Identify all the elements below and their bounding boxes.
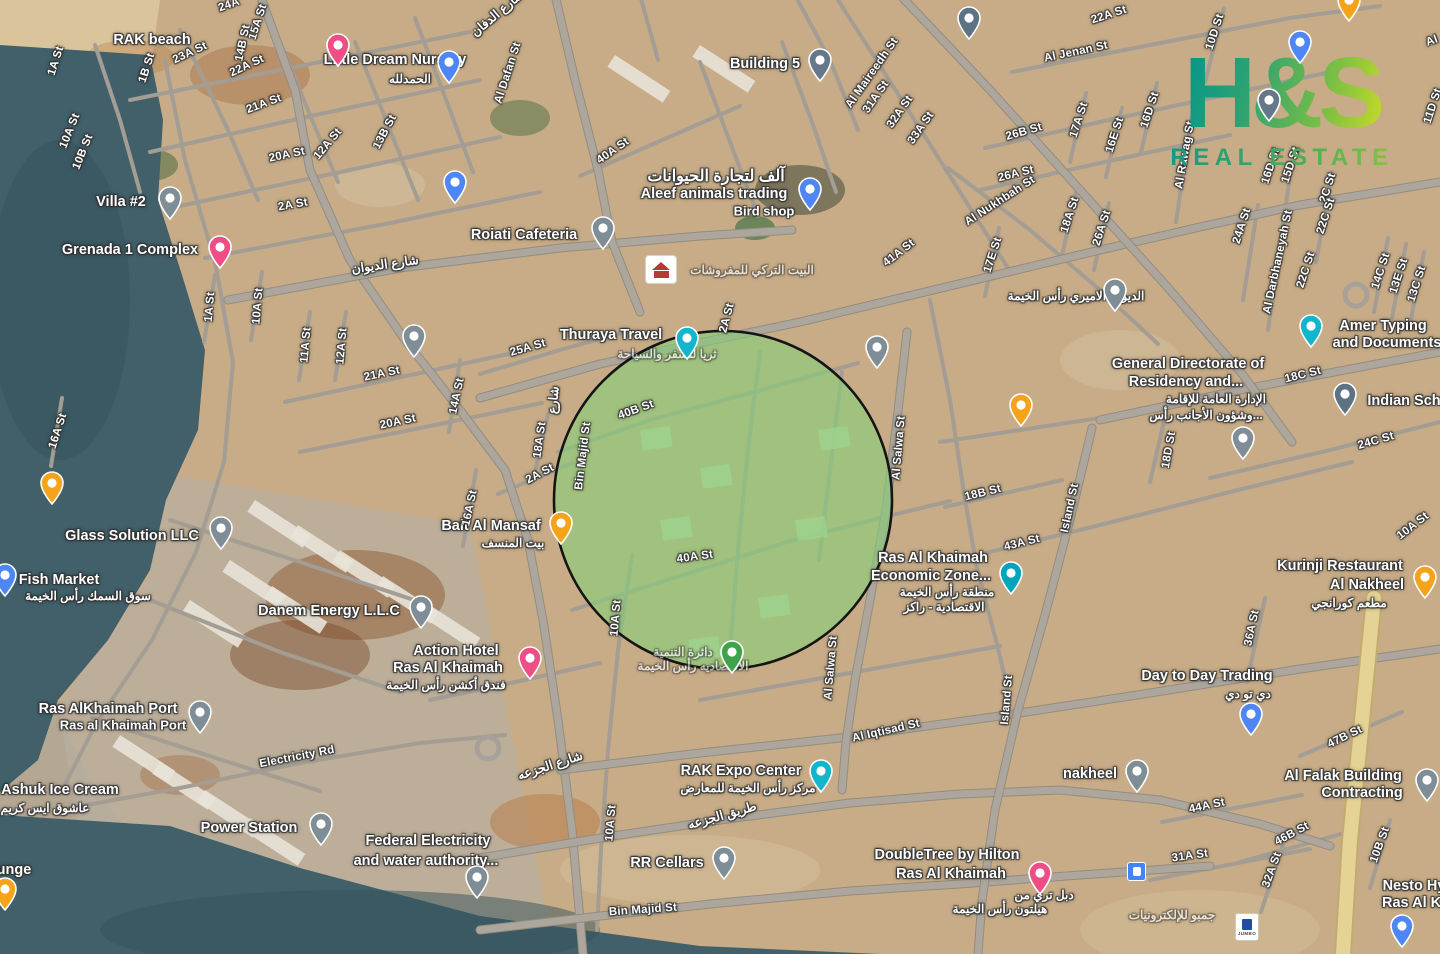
supermarket-pin[interactable] — [443, 170, 467, 204]
poi-logo-area-pin[interactable] — [1257, 88, 1281, 122]
shop-logo-area-pin[interactable] — [1288, 30, 1312, 64]
aleef-animals-trading-pin[interactable] — [798, 177, 822, 211]
kurinji-restaurant-pin[interactable] — [1413, 565, 1437, 599]
map-canvas[interactable]: RAK beachLittle Dream NurseryالحمدللهVil… — [0, 0, 1440, 954]
jumbo-electronics-icon[interactable]: JUMBO — [1235, 913, 1259, 941]
indian-school-pin[interactable] — [1333, 382, 1357, 416]
school-top-edge-pin[interactable] — [957, 6, 981, 40]
glass-solution-pin[interactable] — [209, 516, 233, 550]
poi-east-of-circle-pin[interactable] — [865, 335, 889, 369]
rak-beach-pin[interactable] — [326, 33, 350, 67]
action-hotel-pin[interactable] — [518, 646, 542, 680]
lounge-pin[interactable] — [0, 877, 17, 911]
rak-economic-zone-pin[interactable] — [999, 561, 1023, 595]
turkish-house-furniture-icon[interactable] — [645, 255, 677, 284]
economic-development-dept-pin[interactable] — [720, 640, 744, 674]
amer-typing-pin[interactable] — [1299, 314, 1323, 348]
amiri-diwan-pin[interactable] — [1103, 278, 1127, 312]
restaurant-creek-pin[interactable] — [40, 471, 64, 505]
little-dream-nursery-pin[interactable] — [437, 50, 461, 84]
bus-station-icon[interactable] — [1127, 862, 1146, 881]
al-falak-contracting-pin[interactable] — [1415, 768, 1439, 802]
federal-electricity-pin[interactable] — [465, 865, 489, 899]
danem-energy-pin[interactable] — [409, 595, 433, 629]
roiati-cafeteria-pin[interactable] — [591, 216, 615, 250]
bait-al-mansaf-pin[interactable] — [549, 511, 573, 545]
general-directorate-pin[interactable] — [1231, 426, 1255, 460]
building-5-pin[interactable] — [808, 48, 832, 82]
villa-2-pin[interactable] — [158, 186, 182, 220]
hs-real-estate-logo: H&S REAL ESTATE — [1158, 44, 1406, 172]
logo-wordmark: REAL ESTATE — [1158, 144, 1406, 172]
mosque-pin[interactable] — [402, 324, 426, 358]
rak-port-pin[interactable] — [188, 700, 212, 734]
rak-expo-center-pin[interactable] — [809, 759, 833, 793]
doubletree-hilton-pin[interactable] — [1028, 861, 1052, 895]
restaurant-top-edge-pin[interactable] — [1337, 0, 1361, 22]
day-to-day-trading-pin[interactable] — [1239, 702, 1263, 736]
nakheel-pin[interactable] — [1125, 759, 1149, 793]
grenada-1-complex-pin[interactable] — [208, 235, 232, 269]
nesto-hypermarket-pin[interactable] — [1390, 914, 1414, 948]
power-station-pin[interactable] — [309, 812, 333, 846]
restaurant-mid-right-pin[interactable] — [1009, 393, 1033, 427]
thuraya-travel-pin[interactable] — [675, 326, 699, 360]
fish-market-pin[interactable] — [0, 563, 17, 597]
rr-cellars-pin[interactable] — [712, 846, 736, 880]
logo-monogram: H&S — [1158, 44, 1406, 142]
